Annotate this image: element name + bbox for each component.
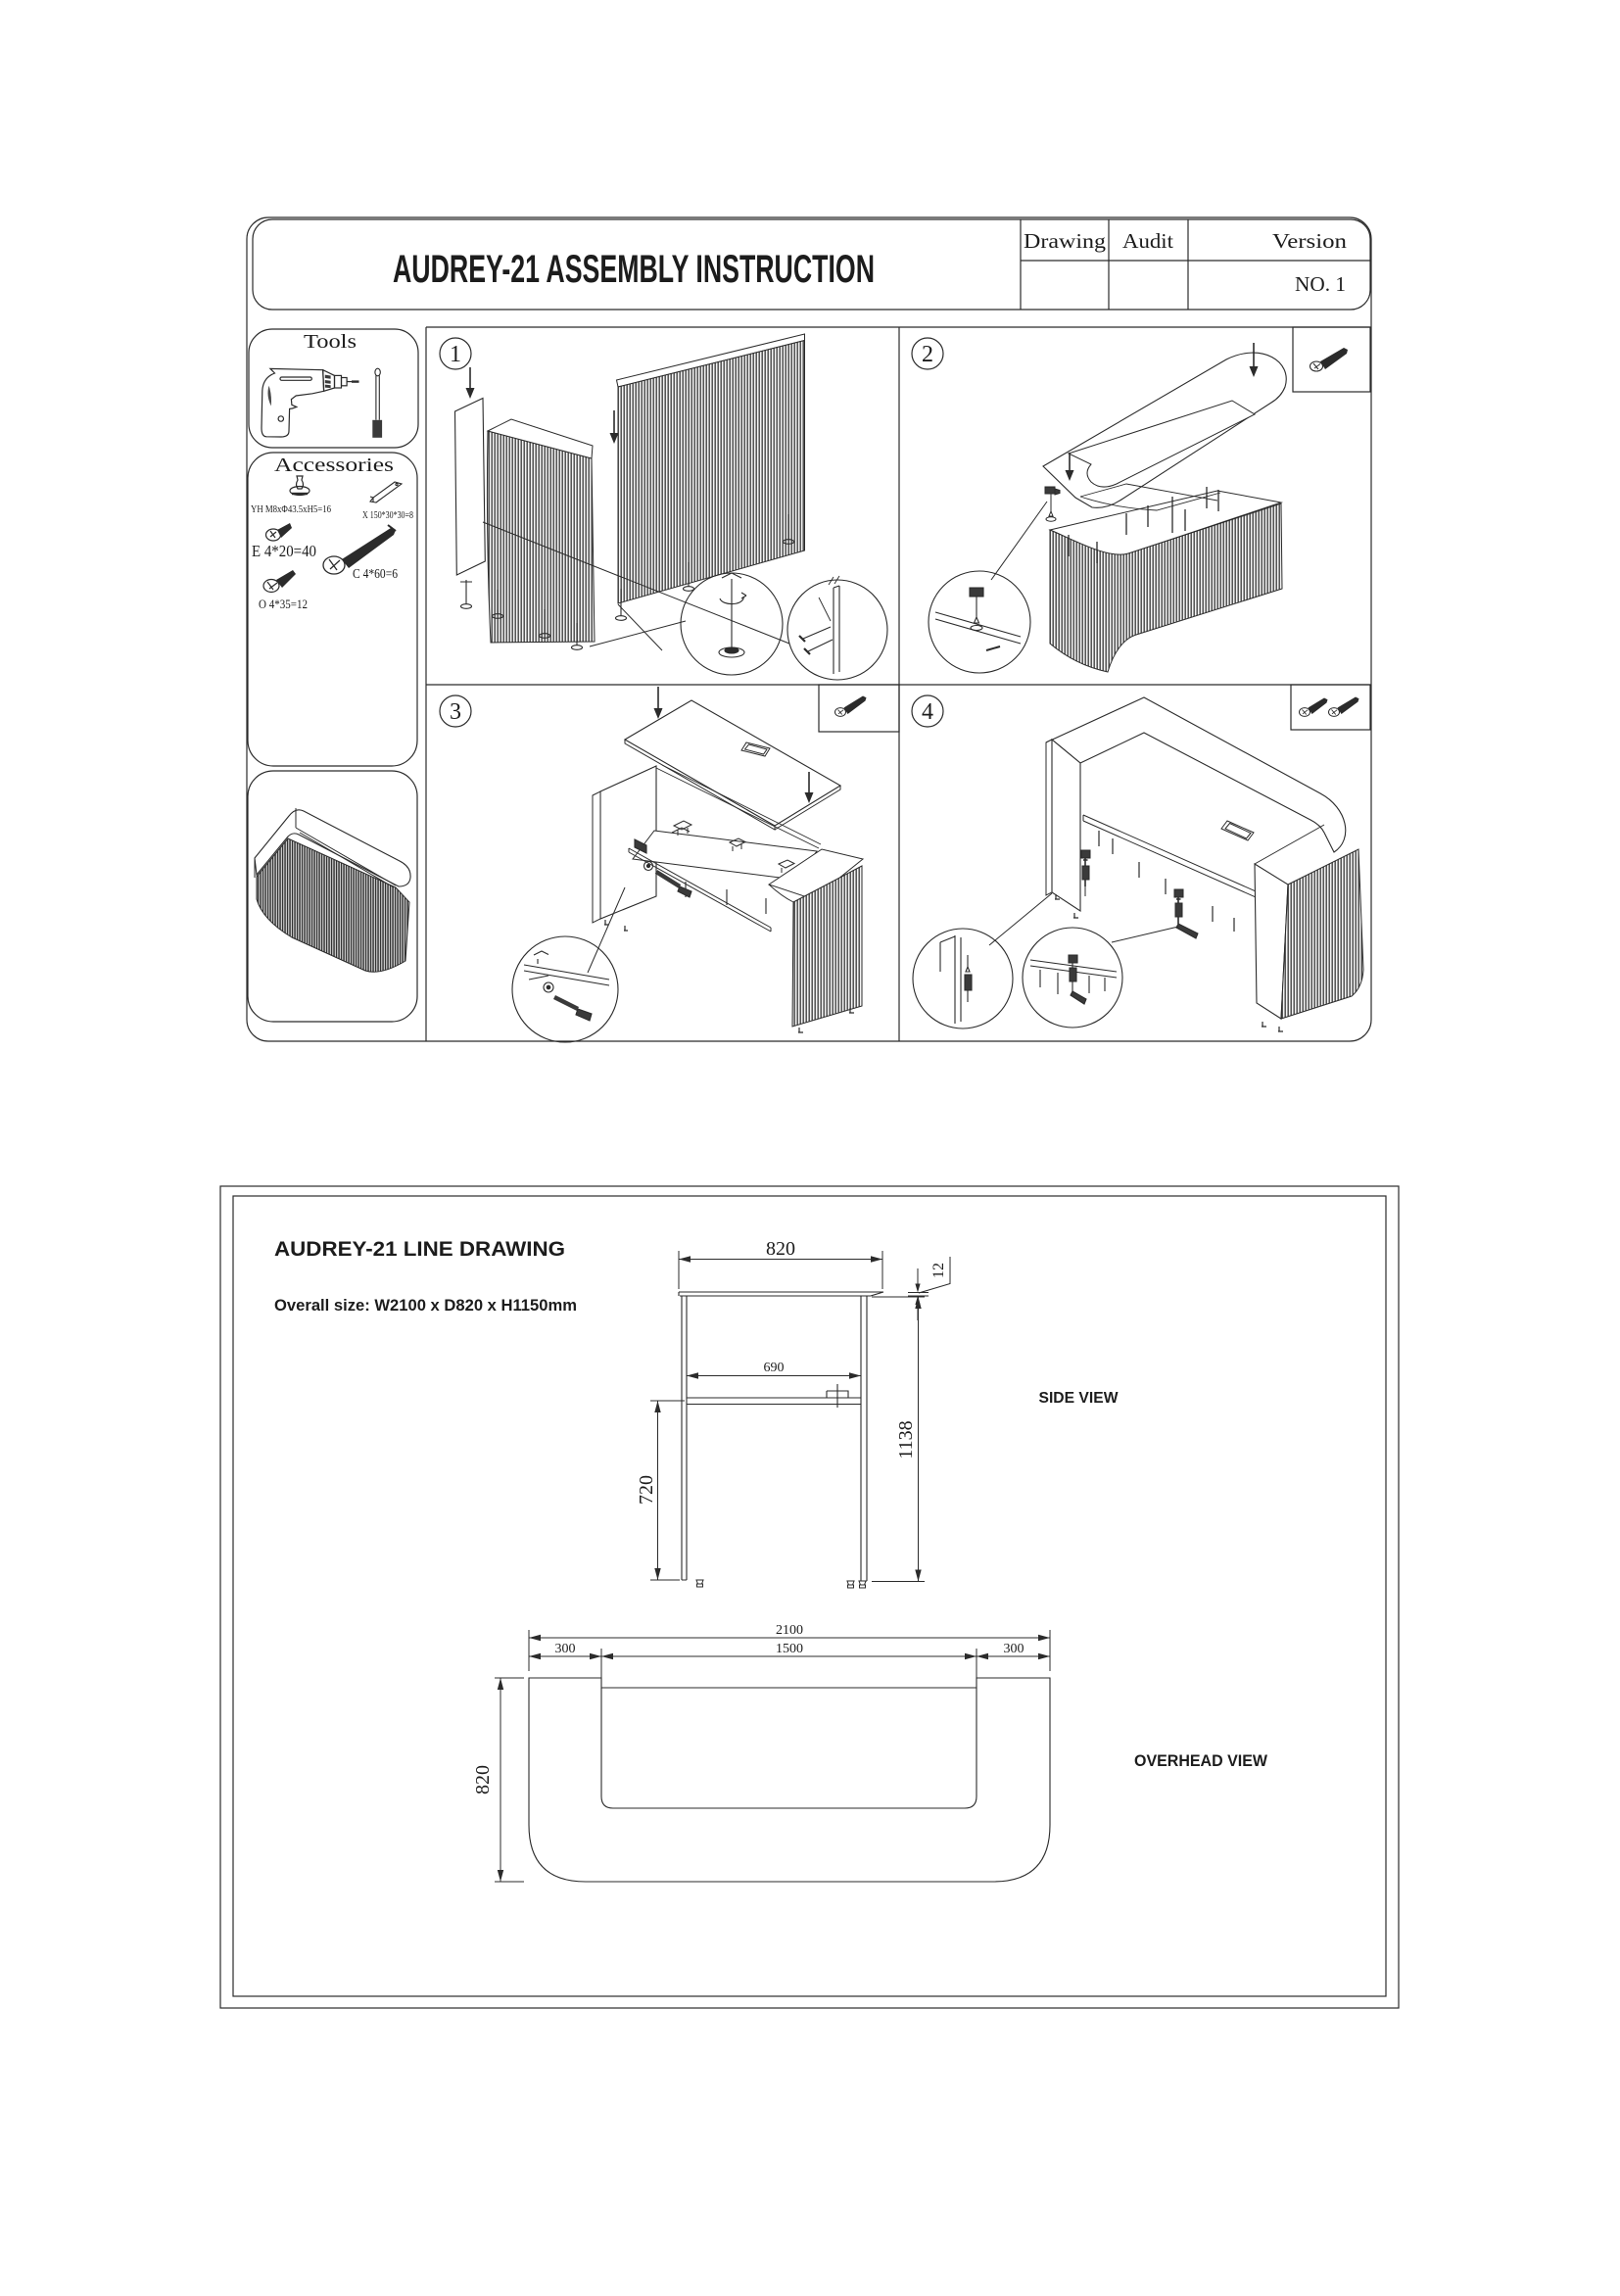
svg-text:4: 4: [922, 699, 933, 725]
svg-text:AUDREY-21 ASSEMBLY INSTRUCTION: AUDREY-21 ASSEMBLY INSTRUCTION: [393, 248, 875, 291]
svg-text:Drawing: Drawing: [1024, 229, 1107, 253]
svg-text:2: 2: [922, 342, 933, 367]
svg-text:2100: 2100: [776, 1623, 803, 1638]
svg-text:C 4*60=6: C 4*60=6: [353, 567, 398, 582]
svg-text:O 4*35=12: O 4*35=12: [259, 597, 308, 611]
svg-text:X 150*30*30=8: X 150*30*30=8: [362, 509, 413, 521]
svg-text:Audit: Audit: [1122, 229, 1173, 253]
svg-text:300: 300: [1004, 1642, 1024, 1656]
svg-text:820: 820: [766, 1238, 795, 1260]
svg-text:1500: 1500: [776, 1642, 803, 1656]
svg-text:Accessories: Accessories: [274, 454, 394, 476]
svg-text:AUDREY-21 LINE DRAWING: AUDREY-21 LINE DRAWING: [274, 1238, 565, 1261]
svg-text:820: 820: [472, 1765, 494, 1794]
svg-text:300: 300: [555, 1642, 576, 1656]
svg-text:OVERHEAD VIEW: OVERHEAD VIEW: [1134, 1751, 1268, 1770]
svg-text:12: 12: [930, 1263, 947, 1278]
svg-text:1: 1: [450, 342, 461, 367]
svg-text:YH M8xΦ43.5xH5=16: YH M8xΦ43.5xH5=16: [251, 503, 331, 515]
svg-text:720: 720: [636, 1475, 657, 1505]
svg-text:3: 3: [450, 699, 461, 725]
svg-text:690: 690: [764, 1361, 785, 1375]
svg-text:E 4*20=40: E 4*20=40: [252, 542, 316, 560]
svg-text:NO. 1: NO. 1: [1295, 272, 1346, 296]
svg-text:1138: 1138: [895, 1420, 917, 1459]
svg-text:SIDE VIEW: SIDE VIEW: [1039, 1390, 1120, 1407]
svg-text:Tools: Tools: [304, 331, 357, 353]
svg-text:Overall size: W2100 x D820 x H: Overall size: W2100 x D820 x H1150mm: [274, 1297, 577, 1315]
svg-text:Version: Version: [1272, 229, 1348, 253]
